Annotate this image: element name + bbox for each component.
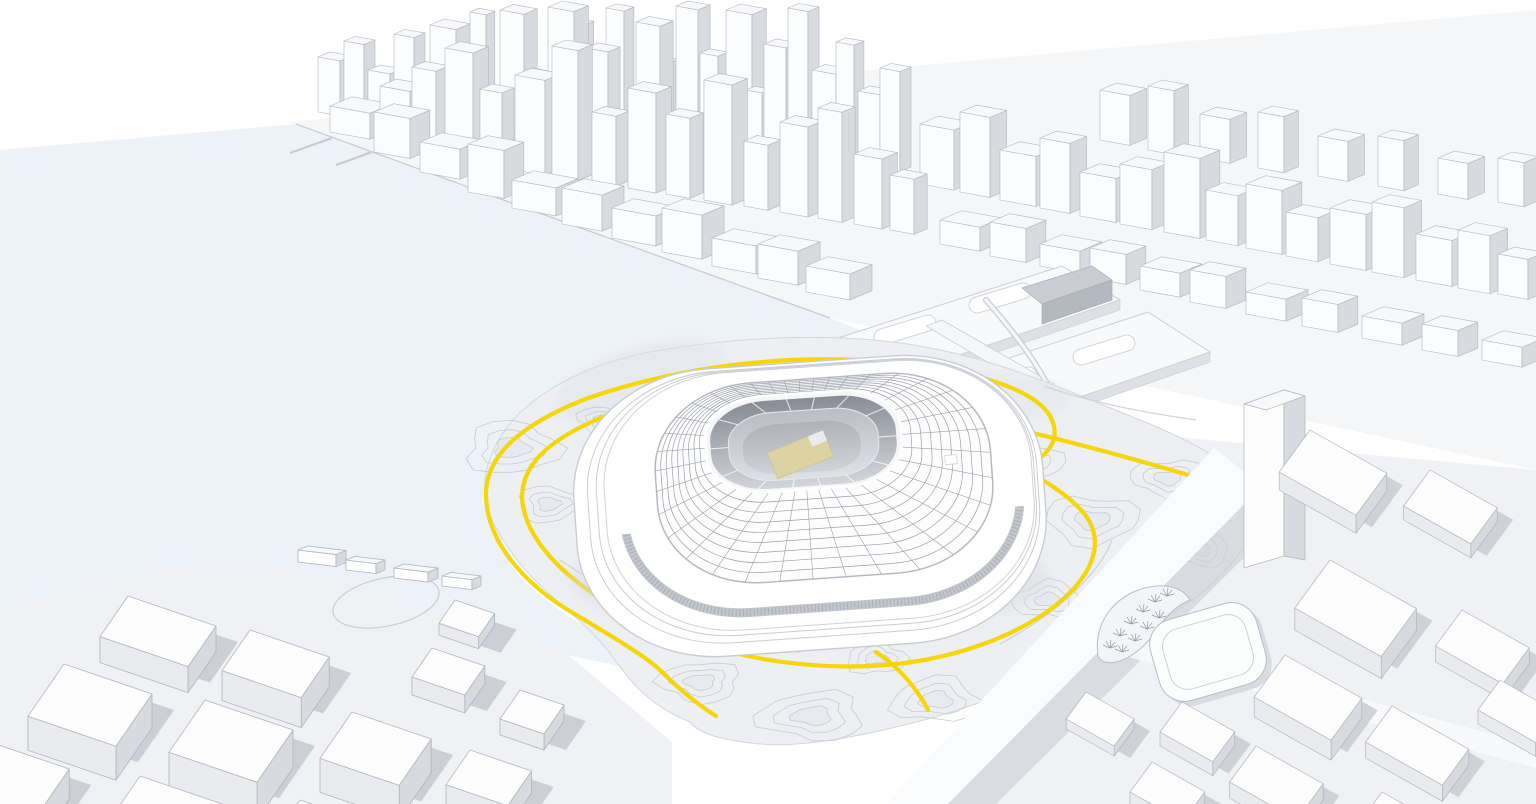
building-front-face	[1100, 90, 1130, 145]
city-building	[666, 108, 703, 198]
building-side-face	[1528, 252, 1536, 299]
city-building	[1438, 151, 1485, 199]
building-side-face	[768, 140, 781, 211]
city-building	[780, 116, 823, 218]
building-side-face	[1284, 111, 1298, 173]
building-side-face	[578, 45, 592, 181]
city-building	[990, 214, 1046, 263]
city-building	[806, 257, 872, 300]
building-front-face	[1498, 254, 1528, 299]
building-front-face	[854, 154, 882, 229]
building-side-face	[1524, 157, 1536, 207]
building-front-face	[890, 175, 914, 234]
city-building	[704, 74, 747, 206]
building-front-face	[1498, 158, 1524, 207]
building-side-face	[1404, 135, 1418, 191]
building-front-face	[704, 80, 732, 205]
building-front-face	[374, 112, 410, 158]
building-front-face	[562, 188, 602, 231]
building-side-face	[1230, 112, 1247, 163]
city-building	[1302, 290, 1358, 333]
city-building	[1372, 195, 1422, 278]
building-front-face	[592, 112, 616, 186]
building-front-face	[1164, 152, 1200, 238]
right-tower-front	[1244, 390, 1284, 568]
city-building	[1120, 157, 1170, 230]
city-building	[1362, 307, 1424, 345]
building-front-face	[1206, 190, 1238, 246]
city-building	[1100, 83, 1147, 145]
building-front-face	[1438, 158, 1468, 199]
building-side-face	[616, 111, 629, 187]
building-front-face	[1120, 164, 1152, 230]
building-side-face	[900, 67, 911, 172]
city-building	[1422, 316, 1478, 357]
city-building	[1148, 80, 1188, 155]
building-front-face	[744, 141, 768, 210]
building-front-face	[818, 108, 842, 222]
building-front-face	[666, 114, 690, 198]
building-front-face	[960, 112, 990, 197]
building-front-face	[628, 88, 656, 193]
city-building	[1246, 283, 1308, 321]
city-building	[960, 105, 1007, 197]
building-front-face	[1378, 136, 1404, 191]
city-building	[1190, 262, 1246, 309]
building-front-face	[1148, 86, 1174, 155]
building-front-face	[990, 222, 1026, 262]
building-front-face	[1372, 202, 1404, 278]
city-building	[1498, 152, 1536, 207]
building-front-face	[1258, 112, 1284, 173]
building-front-face	[1080, 172, 1116, 222]
building-side-face	[690, 113, 703, 199]
building-front-face	[1318, 136, 1348, 181]
city-building	[1286, 205, 1336, 262]
city-building	[552, 40, 592, 181]
city-building	[628, 82, 671, 194]
city-building	[744, 135, 781, 210]
building-front-face	[780, 122, 808, 217]
building-front-face	[1458, 230, 1490, 294]
city-building	[1040, 131, 1087, 213]
building-side-face	[1348, 134, 1365, 181]
city-building	[1258, 106, 1298, 173]
city-building	[1498, 247, 1536, 299]
building-front-face	[1246, 184, 1282, 254]
building-front-face	[552, 46, 578, 181]
city-building	[1378, 130, 1418, 191]
city-building	[818, 102, 855, 222]
scene-canvas	[0, 0, 1536, 804]
city-building	[592, 106, 629, 186]
building-front-face	[662, 208, 702, 259]
building-front-face	[1330, 208, 1366, 270]
building-front-face	[1000, 150, 1036, 206]
building-front-face	[468, 144, 504, 198]
building-side-face	[842, 107, 855, 223]
building-front-face	[1286, 212, 1318, 262]
building-side-face	[1468, 156, 1485, 199]
city-building	[890, 169, 927, 234]
building-side-face	[914, 174, 927, 235]
building-side-face	[1130, 88, 1147, 145]
city-building	[1318, 129, 1365, 181]
render-stage	[0, 0, 1536, 804]
roof-service-block	[945, 455, 958, 465]
building-front-face	[1416, 234, 1452, 286]
building-front-face	[1040, 138, 1070, 213]
